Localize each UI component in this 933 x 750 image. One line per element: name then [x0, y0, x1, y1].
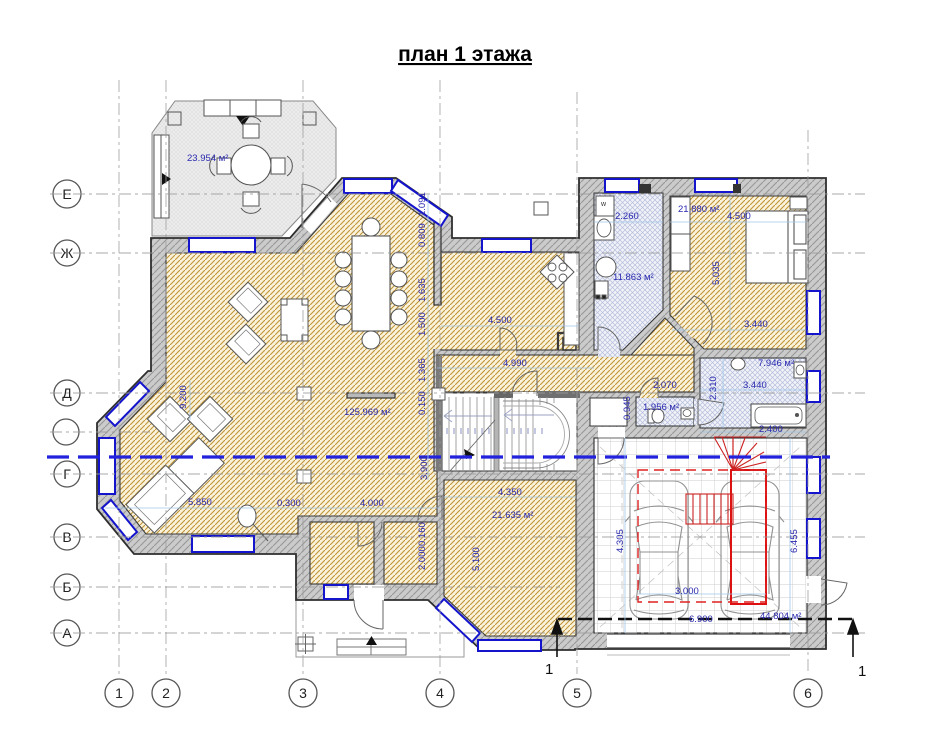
svg-text:6.900: 6.900 [689, 614, 713, 625]
svg-text:1.956 м²: 1.956 м² [643, 402, 679, 413]
svg-text:6: 6 [804, 685, 812, 701]
svg-text:2.260: 2.260 [615, 211, 639, 222]
svg-text:9.200: 9.200 [178, 385, 189, 409]
svg-text:125.969 м²: 125.969 м² [344, 407, 391, 418]
svg-text:план 1 этажа: план 1 этажа [398, 43, 532, 66]
svg-text:3.440: 3.440 [743, 380, 767, 391]
svg-text:w: w [600, 201, 607, 208]
svg-text:1.365: 1.365 [417, 358, 428, 382]
svg-text:23.954 м²: 23.954 м² [187, 153, 228, 164]
svg-text:2.400: 2.400 [759, 424, 783, 435]
svg-text:4.000: 4.000 [360, 498, 384, 509]
svg-text:0.809: 0.809 [417, 223, 428, 247]
svg-text:21.635 м²: 21.635 м² [492, 510, 533, 521]
svg-text:4: 4 [436, 685, 444, 701]
svg-text:5: 5 [573, 685, 581, 701]
svg-text:5.035: 5.035 [711, 261, 722, 285]
svg-text:0.160: 0.160 [417, 522, 428, 546]
svg-text:2.000: 2.000 [417, 546, 428, 570]
svg-text:6.455: 6.455 [789, 529, 800, 553]
svg-text:3.000: 3.000 [675, 586, 699, 597]
svg-text:7.946 м²: 7.946 м² [758, 358, 794, 369]
svg-text:2.310: 2.310 [708, 376, 719, 400]
svg-text:1.500: 1.500 [417, 312, 428, 336]
svg-text:3: 3 [299, 685, 307, 701]
svg-text:11.863 м²: 11.863 м² [613, 272, 654, 283]
svg-text:3.900: 3.900 [419, 456, 430, 480]
svg-text:4.500: 4.500 [488, 315, 512, 326]
svg-text:4.305: 4.305 [615, 529, 626, 553]
svg-text:21.880 м²: 21.880 м² [678, 204, 719, 215]
svg-text:4.990: 4.990 [503, 358, 527, 369]
svg-text:1: 1 [115, 685, 123, 701]
svg-text:0.945: 0.945 [622, 396, 633, 420]
svg-text:1: 1 [545, 661, 553, 678]
svg-text:44.804 м²: 44.804 м² [760, 611, 801, 622]
svg-text:0.300: 0.300 [277, 498, 301, 509]
svg-text:4.350: 4.350 [498, 487, 522, 498]
svg-text:1.091: 1.091 [417, 192, 428, 216]
svg-text:4.500: 4.500 [727, 211, 751, 222]
svg-text:2: 2 [162, 685, 170, 701]
svg-text:3.440: 3.440 [744, 319, 768, 330]
svg-text:5.100: 5.100 [471, 547, 482, 571]
svg-text:0.150: 0.150 [417, 391, 428, 415]
svg-text:5.850: 5.850 [188, 497, 212, 508]
svg-text:2.070: 2.070 [653, 380, 677, 391]
svg-text:1.635: 1.635 [417, 278, 428, 302]
svg-text:1: 1 [858, 663, 866, 680]
